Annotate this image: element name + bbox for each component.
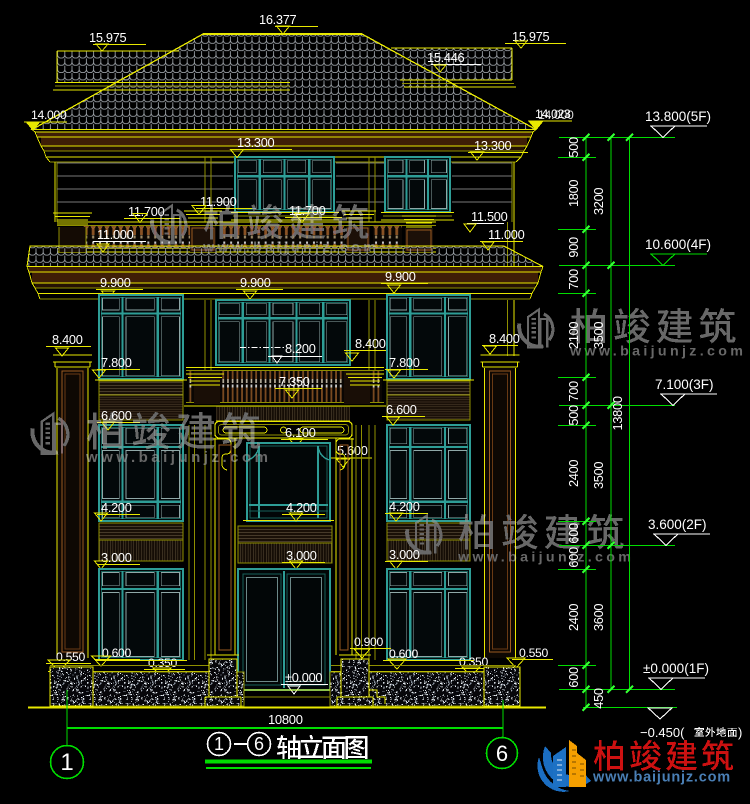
svg-text:450: 450 xyxy=(591,688,606,709)
svg-text:9.900: 9.900 xyxy=(385,269,416,284)
svg-text:15.975: 15.975 xyxy=(89,30,127,45)
svg-text:0.900: 0.900 xyxy=(354,635,384,649)
svg-text:14.000: 14.000 xyxy=(538,108,574,122)
svg-text:6.100: 6.100 xyxy=(285,425,316,440)
svg-text:15.975: 15.975 xyxy=(512,29,550,44)
svg-text:13.300: 13.300 xyxy=(237,135,275,150)
svg-text:±0.000(1F): ±0.000(1F) xyxy=(643,661,709,676)
svg-text:600: 600 xyxy=(566,547,581,568)
svg-text:500: 500 xyxy=(566,137,581,158)
svg-text:11.500: 11.500 xyxy=(471,209,508,224)
svg-text:16.377: 16.377 xyxy=(259,12,297,27)
svg-text:www.baijunjz.com: www.baijunjz.com xyxy=(202,239,379,255)
svg-text:6: 6 xyxy=(496,741,508,766)
svg-text:600: 600 xyxy=(566,523,581,544)
svg-text:0.600: 0.600 xyxy=(102,646,132,660)
svg-text:±0.000: ±0.000 xyxy=(285,670,322,685)
svg-text:7.800: 7.800 xyxy=(389,355,420,370)
svg-text:500: 500 xyxy=(566,405,581,426)
svg-text:900: 900 xyxy=(566,237,581,258)
svg-text:9.900: 9.900 xyxy=(100,275,131,290)
svg-text:8.400: 8.400 xyxy=(52,332,83,347)
svg-text:3200: 3200 xyxy=(591,188,606,215)
svg-text:2400: 2400 xyxy=(566,604,581,631)
svg-text:8.400: 8.400 xyxy=(355,336,386,351)
svg-text:7.350: 7.350 xyxy=(279,374,310,389)
svg-text:1800: 1800 xyxy=(566,180,581,207)
svg-text:www.baijunjz.com: www.baijunjz.com xyxy=(457,549,634,565)
svg-text:8.400: 8.400 xyxy=(489,331,520,346)
svg-text:11.000: 11.000 xyxy=(97,227,134,242)
svg-text:3.600(2F): 3.600(2F) xyxy=(648,517,707,532)
svg-text:0.550: 0.550 xyxy=(56,650,86,664)
svg-text:): ) xyxy=(738,725,742,740)
svg-text:10800: 10800 xyxy=(268,712,303,727)
svg-text:3600: 3600 xyxy=(591,604,606,631)
svg-text:700: 700 xyxy=(566,381,581,402)
svg-text:13.300: 13.300 xyxy=(474,138,512,153)
svg-text:2100: 2100 xyxy=(566,322,581,349)
svg-text:11.000: 11.000 xyxy=(488,227,525,242)
svg-text:7.100(3F): 7.100(3F) xyxy=(655,377,714,392)
svg-text:13800: 13800 xyxy=(610,396,625,430)
svg-text:www.baijunjz.com: www.baijunjz.com xyxy=(85,449,271,466)
svg-text:3500: 3500 xyxy=(591,462,606,489)
svg-text:6.600: 6.600 xyxy=(386,402,417,417)
svg-text:10.600(4F): 10.600(4F) xyxy=(645,237,711,252)
svg-text:1: 1 xyxy=(60,749,73,776)
svg-text:7.800: 7.800 xyxy=(101,355,132,370)
svg-text:2400: 2400 xyxy=(566,460,581,487)
svg-text:4.200: 4.200 xyxy=(389,499,420,514)
svg-text:13.800(5F): 13.800(5F) xyxy=(645,109,711,124)
svg-text:www.baijunjz.com: www.baijunjz.com xyxy=(592,770,731,786)
svg-text:15.446: 15.446 xyxy=(427,50,465,65)
svg-text:600: 600 xyxy=(566,667,581,688)
svg-text:1: 1 xyxy=(214,734,224,754)
svg-text:8.200: 8.200 xyxy=(285,341,316,356)
svg-text:11.700: 11.700 xyxy=(128,204,165,219)
svg-text:700: 700 xyxy=(566,269,581,290)
svg-text:−0.450(: −0.450( xyxy=(640,725,685,740)
svg-text:6: 6 xyxy=(254,734,264,754)
svg-text:14.000: 14.000 xyxy=(31,108,67,122)
svg-text:9.900: 9.900 xyxy=(240,275,271,290)
svg-text:3500: 3500 xyxy=(591,322,606,349)
